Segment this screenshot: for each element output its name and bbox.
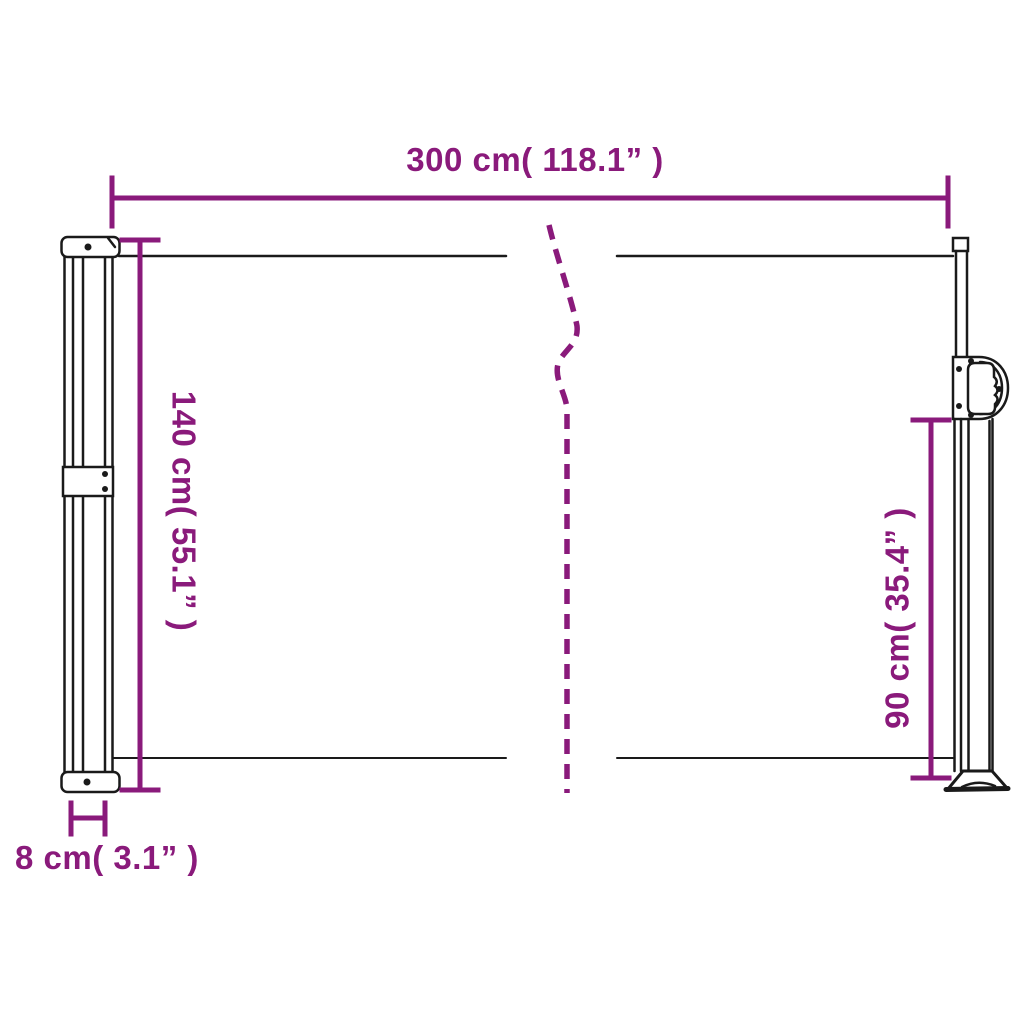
height-right-dimension-label: 90 cm( 35.4” ) <box>881 507 914 729</box>
pole-upper-tube <box>956 251 967 357</box>
bracket-screw-icon <box>102 486 108 492</box>
pole-base-plate-bottom <box>946 789 1008 790</box>
cassette-body <box>65 255 113 774</box>
handle-screw-icon <box>968 358 974 364</box>
height-left-dimension-label: 140 cm( 55.1” ) <box>168 391 201 631</box>
cassette-top-screw-icon <box>85 244 92 251</box>
handle-grip-cutout <box>968 363 998 414</box>
width-dimension-label: 300 cm( 118.1” ) <box>406 143 664 176</box>
handle-screw-icon <box>956 403 962 409</box>
break-line <box>549 225 577 793</box>
handle-screw-icon <box>956 366 962 372</box>
width-dimension-line <box>112 178 948 226</box>
bracket-screw-icon <box>102 471 108 477</box>
depth-dimension-label: 8 cm( 3.1” ) <box>15 841 199 874</box>
cassette-bottom-screw-icon <box>84 779 91 786</box>
height-right-dimension-line <box>913 420 949 778</box>
handle-screw-icon <box>996 386 1002 392</box>
awning-dimension-diagram: 300 cm( 118.1” ) 140 cm( 55.1” ) 90 cm( … <box>0 0 1024 1024</box>
pole-lower-tube <box>955 419 993 771</box>
depth-dimension-line <box>71 803 105 834</box>
height-left-dimension-line <box>122 240 158 790</box>
pole-top-cap <box>953 238 968 251</box>
handle-screw-icon <box>968 412 974 418</box>
